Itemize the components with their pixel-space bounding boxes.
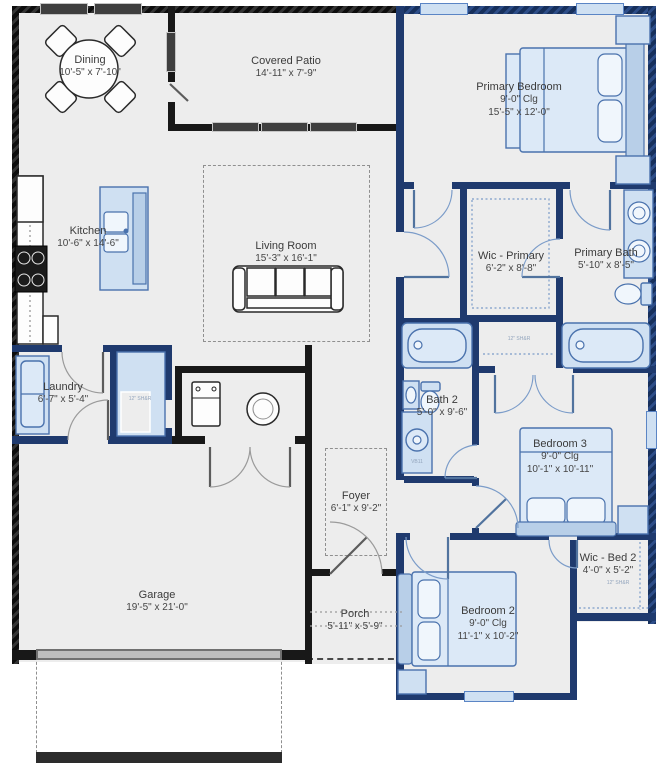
floor-plan: Dining 10'-5" x 7'-10" Covered Patio 14'… [0,0,663,768]
door-wic-bed2 [549,540,577,568]
room-label-wic-primary: Wic - Primary 6'-2" x 8'-8" [478,249,544,276]
linen-shelf-note: 12" SH&R [508,336,531,342]
door-primary-bath [570,190,610,230]
door-patio [170,84,188,101]
door-utility-double [210,447,290,487]
room-label-primary-bedroom: Primary Bedroom 9'-0" Clg 15'-5" x 12'-0… [476,80,562,120]
room-label-porch: Porch 5'-11" x 5'-9" [327,607,382,634]
door-front-entry [330,522,382,574]
door-hall-opening [404,232,449,277]
door-bedroom3-double [495,375,573,413]
utility-unit [192,382,220,426]
room-label-kitchen: Kitchen 10'-6" x 14'-6" [57,224,119,251]
bath2-bathtub [402,323,472,368]
room-label-laundry: Laundry 6'-7" x 5'-4" [38,380,88,407]
toilet-icon [615,283,652,305]
room-label-living-room: Living Room 15'-3" x 16'-1" [255,239,317,266]
closet-shelf-note: 12" SH&R [129,396,152,402]
room-label-wic-bed-2: Wic - Bed 2 4'-0" x 5'-2" [580,551,637,578]
wic-bed2-shelf-note: 12" SH&R [607,580,630,586]
room-label-bedroom-3: Bedroom 3 9'-0" Clg 10'-1" x 10'-11" [527,437,593,477]
door-bedroom3-side [476,486,518,528]
sofa [233,266,343,312]
room-label-dining: Dining 10'-5" x 7'-10" [59,53,121,80]
stove-icon [15,246,47,292]
door-bath2 [445,445,477,478]
room-label-covered-patio: Covered Patio 14'-11" x 7'-9" [251,54,321,81]
fixtures-layer [0,0,663,768]
room-label-foyer: Foyer 6'-1" x 9'-2" [331,489,381,516]
room-label-bath-2: Bath 2 5'-0" x 9'-6" [417,393,467,420]
room-label-primary-bath: Primary Bath 5'-10" x 8'-5" [574,246,638,273]
shower-note: VB11 [411,459,423,465]
primary-bathtub [562,323,650,368]
room-label-bedroom-2: Bedroom 2 9'-0" Clg 11'-1" x 10'-2" [458,604,519,644]
door-primary-bedroom [414,190,452,228]
closet-shelf [117,352,165,436]
water-heater-icon [247,393,279,425]
room-label-garage: Garage 19'-5" x 21'-0" [126,588,188,615]
